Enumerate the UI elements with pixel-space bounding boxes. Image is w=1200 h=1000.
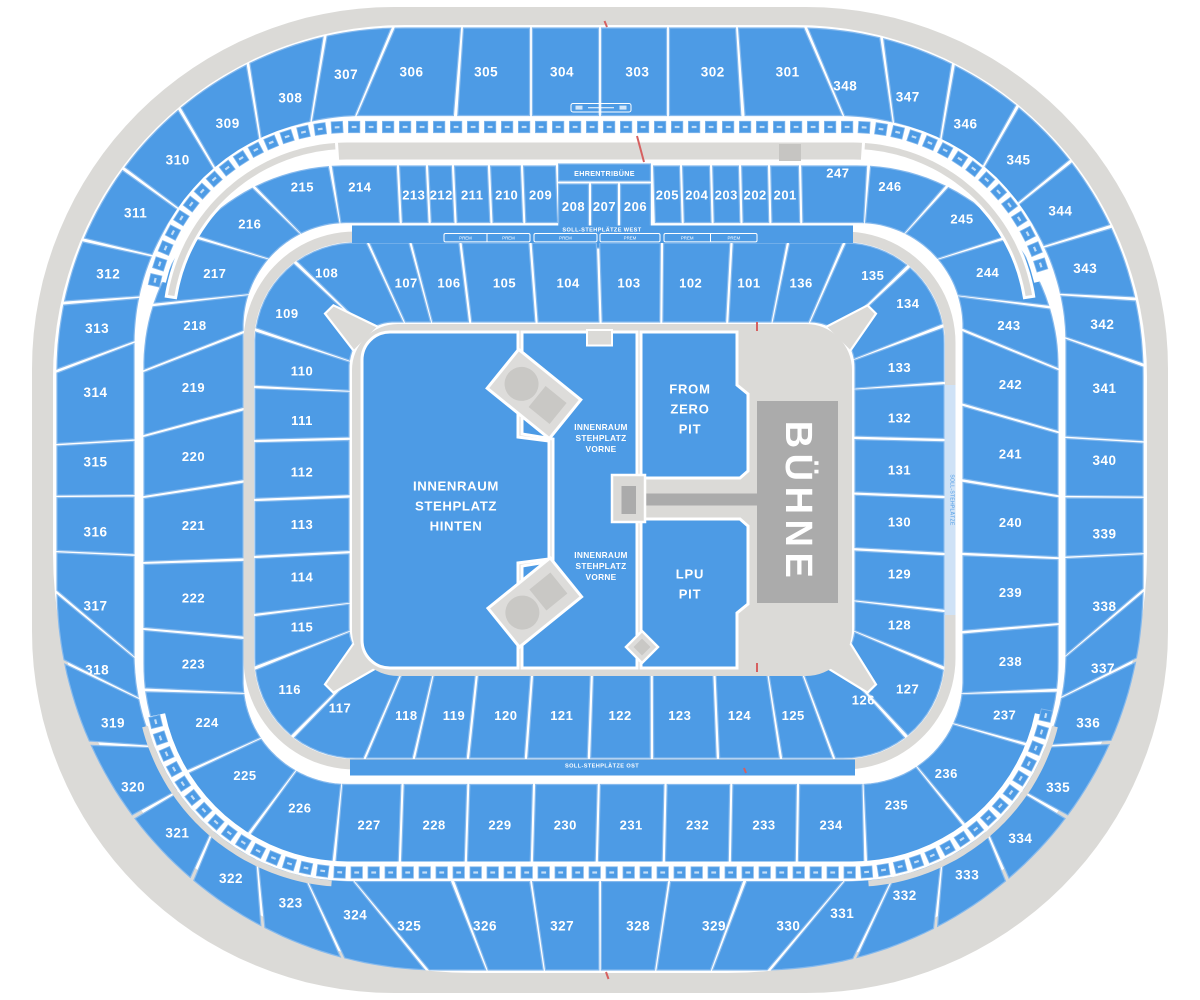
svg-text:313: 313 (85, 321, 109, 336)
svg-text:238: 238 (999, 654, 1022, 669)
svg-text:207: 207 (593, 199, 616, 214)
svg-text:109: 109 (275, 306, 298, 321)
svg-text:209: 209 (529, 187, 552, 202)
svg-text:PREM: PREM (459, 236, 472, 241)
svg-text:221: 221 (182, 518, 205, 533)
svg-text:211: 211 (461, 187, 483, 202)
svg-text:105: 105 (493, 276, 516, 291)
svg-text:135: 135 (861, 268, 884, 283)
svg-text:233: 233 (752, 818, 775, 833)
svg-text:ZERO: ZERO (670, 402, 709, 417)
svg-text:345: 345 (1006, 153, 1030, 168)
svg-text:114: 114 (291, 570, 314, 585)
svg-text:330: 330 (776, 919, 800, 934)
svg-text:234: 234 (819, 818, 842, 833)
svg-text:STEHPLATZ: STEHPLATZ (576, 433, 627, 443)
svg-text:111: 111 (291, 413, 313, 428)
svg-text:131: 131 (888, 463, 911, 478)
svg-text:115: 115 (291, 619, 313, 634)
svg-text:321: 321 (165, 826, 189, 841)
svg-text:126: 126 (852, 692, 875, 707)
svg-text:133: 133 (888, 360, 911, 375)
svg-text:203: 203 (715, 187, 738, 202)
svg-text:303: 303 (625, 65, 649, 80)
svg-text:338: 338 (1092, 599, 1116, 614)
svg-text:205: 205 (656, 187, 679, 202)
svg-text:342: 342 (1090, 317, 1114, 332)
svg-text:323: 323 (279, 895, 303, 910)
svg-text:307: 307 (334, 67, 358, 82)
svg-text:227: 227 (357, 818, 380, 833)
svg-text:244: 244 (976, 265, 999, 280)
svg-text:FROM: FROM (669, 382, 710, 397)
svg-text:SOLL-STEHPLÄTZE WEST: SOLL-STEHPLÄTZE WEST (562, 227, 641, 234)
svg-text:332: 332 (893, 888, 917, 903)
svg-text:222: 222 (182, 590, 205, 605)
svg-text:216: 216 (238, 217, 261, 232)
svg-text:SOLL-STEHPLÄTZE: SOLL-STEHPLÄTZE (949, 474, 956, 526)
svg-text:136: 136 (789, 276, 812, 291)
svg-text:327: 327 (550, 919, 574, 934)
svg-text:202: 202 (744, 187, 767, 202)
svg-text:219: 219 (182, 380, 205, 395)
svg-text:310: 310 (166, 153, 190, 168)
svg-text:324: 324 (343, 908, 367, 923)
svg-text:241: 241 (999, 446, 1022, 461)
svg-text:215: 215 (291, 180, 314, 195)
svg-text:235: 235 (885, 797, 908, 812)
svg-text:201: 201 (774, 187, 797, 202)
svg-text:319: 319 (101, 715, 125, 730)
svg-text:336: 336 (1076, 715, 1100, 730)
svg-text:128: 128 (888, 618, 911, 633)
svg-text:331: 331 (830, 906, 854, 921)
svg-text:239: 239 (999, 585, 1022, 600)
svg-text:339: 339 (1092, 527, 1116, 542)
svg-text:326: 326 (473, 919, 497, 934)
svg-text:213: 213 (402, 187, 425, 202)
svg-text:316: 316 (83, 525, 107, 540)
svg-text:102: 102 (679, 276, 702, 291)
svg-text:110: 110 (291, 363, 313, 378)
svg-text:113: 113 (291, 517, 313, 532)
svg-text:232: 232 (686, 818, 709, 833)
svg-text:329: 329 (702, 919, 726, 934)
svg-text:212: 212 (430, 187, 453, 202)
svg-text:346: 346 (953, 116, 977, 131)
svg-text:PIT: PIT (679, 422, 702, 437)
svg-text:237: 237 (993, 707, 1016, 722)
svg-text:302: 302 (701, 65, 725, 80)
svg-text:218: 218 (183, 318, 206, 333)
svg-text:335: 335 (1046, 780, 1070, 795)
svg-text:320: 320 (121, 780, 145, 795)
svg-text:127: 127 (896, 681, 919, 696)
svg-text:208: 208 (562, 199, 585, 214)
svg-text:125: 125 (782, 708, 805, 723)
svg-text:112: 112 (291, 464, 313, 479)
svg-text:PREM: PREM (502, 236, 515, 241)
svg-text:PREM: PREM (559, 236, 572, 241)
svg-text:SOLL-STEHPLÄTZE OST: SOLL-STEHPLÄTZE OST (565, 763, 639, 770)
svg-text:240: 240 (999, 515, 1022, 530)
svg-text:243: 243 (997, 318, 1020, 333)
svg-text:311: 311 (124, 205, 147, 220)
svg-text:231: 231 (620, 818, 643, 833)
svg-text:301: 301 (776, 65, 800, 80)
svg-text:236: 236 (935, 766, 958, 781)
svg-text:206: 206 (624, 199, 647, 214)
svg-text:318: 318 (85, 663, 109, 678)
svg-text:225: 225 (233, 768, 256, 783)
svg-text:317: 317 (83, 599, 107, 614)
svg-text:334: 334 (1008, 831, 1032, 846)
svg-text:322: 322 (219, 871, 243, 886)
svg-text:104: 104 (556, 276, 579, 291)
svg-text:333: 333 (955, 868, 979, 883)
svg-text:118: 118 (395, 708, 417, 723)
svg-text:LPU: LPU (676, 567, 704, 582)
svg-text:247: 247 (826, 165, 849, 180)
svg-text:107: 107 (395, 276, 418, 291)
svg-text:245: 245 (950, 211, 973, 226)
svg-text:214: 214 (348, 179, 371, 194)
svg-text:101: 101 (737, 276, 760, 291)
svg-text:VORNE: VORNE (585, 444, 616, 454)
svg-text:305: 305 (474, 65, 498, 80)
svg-text:STEHPLATZ: STEHPLATZ (576, 561, 627, 571)
svg-text:124: 124 (728, 708, 751, 723)
svg-text:315: 315 (83, 454, 107, 469)
svg-text:328: 328 (626, 919, 650, 934)
svg-text:343: 343 (1073, 261, 1097, 276)
svg-text:229: 229 (488, 818, 511, 833)
svg-text:134: 134 (896, 296, 919, 311)
svg-text:348: 348 (833, 78, 857, 93)
svg-text:308: 308 (278, 91, 302, 106)
svg-text:HINTEN: HINTEN (430, 519, 483, 534)
svg-text:325: 325 (397, 919, 421, 934)
svg-text:304: 304 (550, 65, 574, 80)
svg-text:106: 106 (437, 276, 460, 291)
svg-text:223: 223 (182, 657, 205, 672)
svg-text:INNENRAUM: INNENRAUM (574, 550, 627, 560)
svg-text:132: 132 (888, 411, 911, 426)
svg-text:121: 121 (550, 708, 573, 723)
svg-text:PREM: PREM (681, 236, 694, 241)
svg-text:119: 119 (443, 708, 465, 723)
svg-text:341: 341 (1092, 381, 1116, 396)
svg-text:VORNE: VORNE (585, 572, 616, 582)
svg-text:344: 344 (1048, 204, 1072, 219)
svg-text:129: 129 (888, 567, 911, 582)
svg-text:116: 116 (279, 682, 301, 697)
svg-text:204: 204 (685, 187, 708, 202)
svg-text:347: 347 (896, 90, 920, 105)
svg-text:314: 314 (83, 385, 107, 400)
svg-text:220: 220 (182, 449, 205, 464)
svg-text:BÜHNE: BÜHNE (777, 421, 820, 584)
svg-text:246: 246 (878, 179, 901, 194)
svg-text:228: 228 (422, 818, 445, 833)
svg-text:108: 108 (315, 266, 338, 281)
svg-text:INNENRAUM: INNENRAUM (413, 479, 499, 494)
svg-text:340: 340 (1092, 453, 1116, 468)
svg-text:122: 122 (608, 708, 631, 723)
svg-text:123: 123 (668, 708, 691, 723)
svg-text:117: 117 (329, 700, 351, 715)
svg-text:230: 230 (554, 818, 577, 833)
svg-text:224: 224 (195, 715, 218, 730)
svg-text:217: 217 (203, 266, 226, 281)
svg-text:PREM: PREM (624, 236, 637, 241)
svg-text:EHRENTRIBÜNE: EHRENTRIBÜNE (574, 169, 635, 178)
svg-text:242: 242 (999, 377, 1022, 392)
svg-text:INNENRAUM: INNENRAUM (574, 422, 627, 432)
svg-text:309: 309 (216, 116, 240, 131)
svg-text:306: 306 (399, 65, 423, 80)
svg-text:103: 103 (617, 276, 640, 291)
svg-text:PIT: PIT (679, 587, 702, 602)
svg-text:210: 210 (495, 187, 518, 202)
svg-text:312: 312 (96, 267, 120, 282)
svg-text:130: 130 (888, 515, 911, 530)
svg-text:120: 120 (494, 708, 517, 723)
svg-text:STEHPLATZ: STEHPLATZ (415, 499, 497, 514)
svg-text:226: 226 (288, 801, 311, 816)
svg-text:PREM: PREM (727, 236, 740, 241)
